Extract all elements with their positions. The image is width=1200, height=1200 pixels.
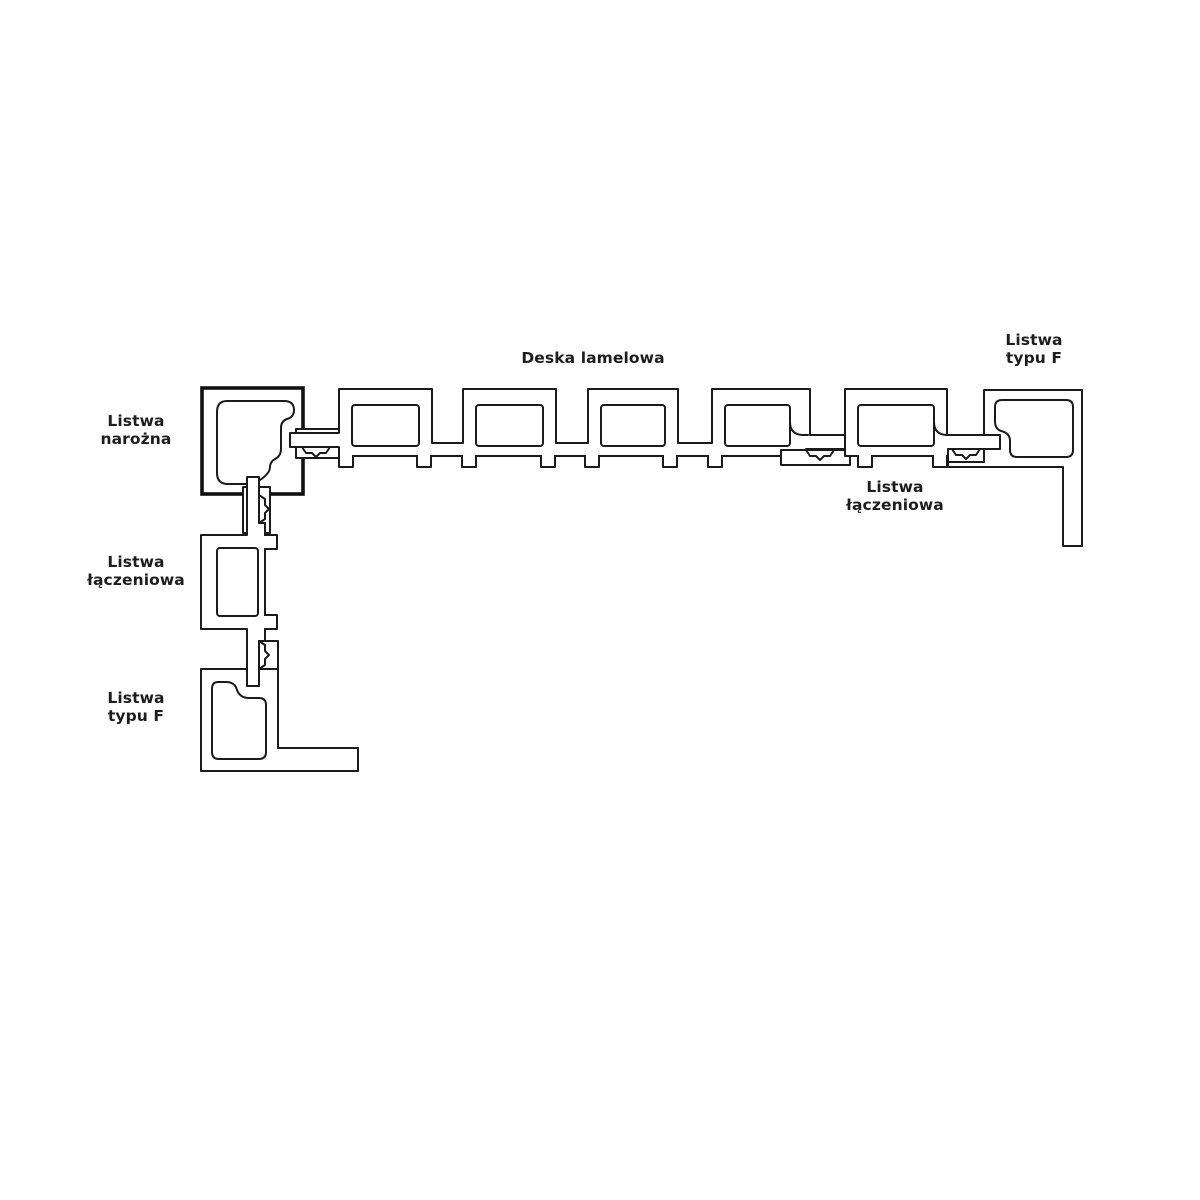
board-foot xyxy=(417,455,431,467)
connecting-strip-block xyxy=(781,450,850,465)
board-foot xyxy=(708,455,722,467)
label-line: typu F xyxy=(107,707,164,725)
label-deska-lamelowa: Deska lamelowa xyxy=(521,349,664,367)
label-line: Listwa xyxy=(846,478,944,496)
label-line: narożna xyxy=(100,430,171,448)
label-line: typu F xyxy=(1005,349,1062,367)
slat-hollow-3 xyxy=(601,405,665,446)
corner-strip-drawing xyxy=(202,388,345,533)
board-foot xyxy=(541,455,555,467)
diagram-canvas xyxy=(0,0,1200,1200)
profile-cross-section-diagram: Deska lamelowa Listwa typu F Listwa naro… xyxy=(0,0,1200,1200)
label-line: łączeniowa xyxy=(846,496,944,514)
board-foot xyxy=(339,455,353,467)
board-foot xyxy=(858,455,872,467)
lamella-board-left-drawing xyxy=(290,389,845,467)
slat-hollow-1 xyxy=(352,405,419,446)
label-line: Deska lamelowa xyxy=(521,349,664,367)
label-line: Listwa xyxy=(87,553,185,571)
label-listwa-laczeniowa-right: Listwa łączeniowa xyxy=(846,478,944,514)
f-strip-bottom-drawing xyxy=(201,669,358,771)
board-foot xyxy=(663,455,677,467)
label-line: łączeniowa xyxy=(87,571,185,589)
label-listwa-narozna: Listwa narożna xyxy=(100,412,171,448)
label-line: Listwa xyxy=(1005,331,1062,349)
label-listwa-laczeniowa-left: Listwa łączeniowa xyxy=(87,553,185,589)
board-foot xyxy=(585,455,599,467)
slat-hollow-4 xyxy=(725,405,790,446)
board-foot-vertical xyxy=(264,535,277,549)
vertical-slat-hollow xyxy=(217,548,258,616)
label-listwa-typu-f-top: Listwa typu F xyxy=(1005,331,1062,367)
label-line: Listwa xyxy=(107,689,164,707)
f-strip-right-drawing xyxy=(948,390,1082,546)
slat-hollow-2 xyxy=(476,405,543,446)
label-line: Listwa xyxy=(100,412,171,430)
board-foot xyxy=(462,455,476,467)
slat-hollow-5 xyxy=(858,405,934,446)
board-foot-vertical xyxy=(264,615,277,629)
label-listwa-typu-f-bottom: Listwa typu F xyxy=(107,689,164,725)
board-foot xyxy=(933,455,947,467)
